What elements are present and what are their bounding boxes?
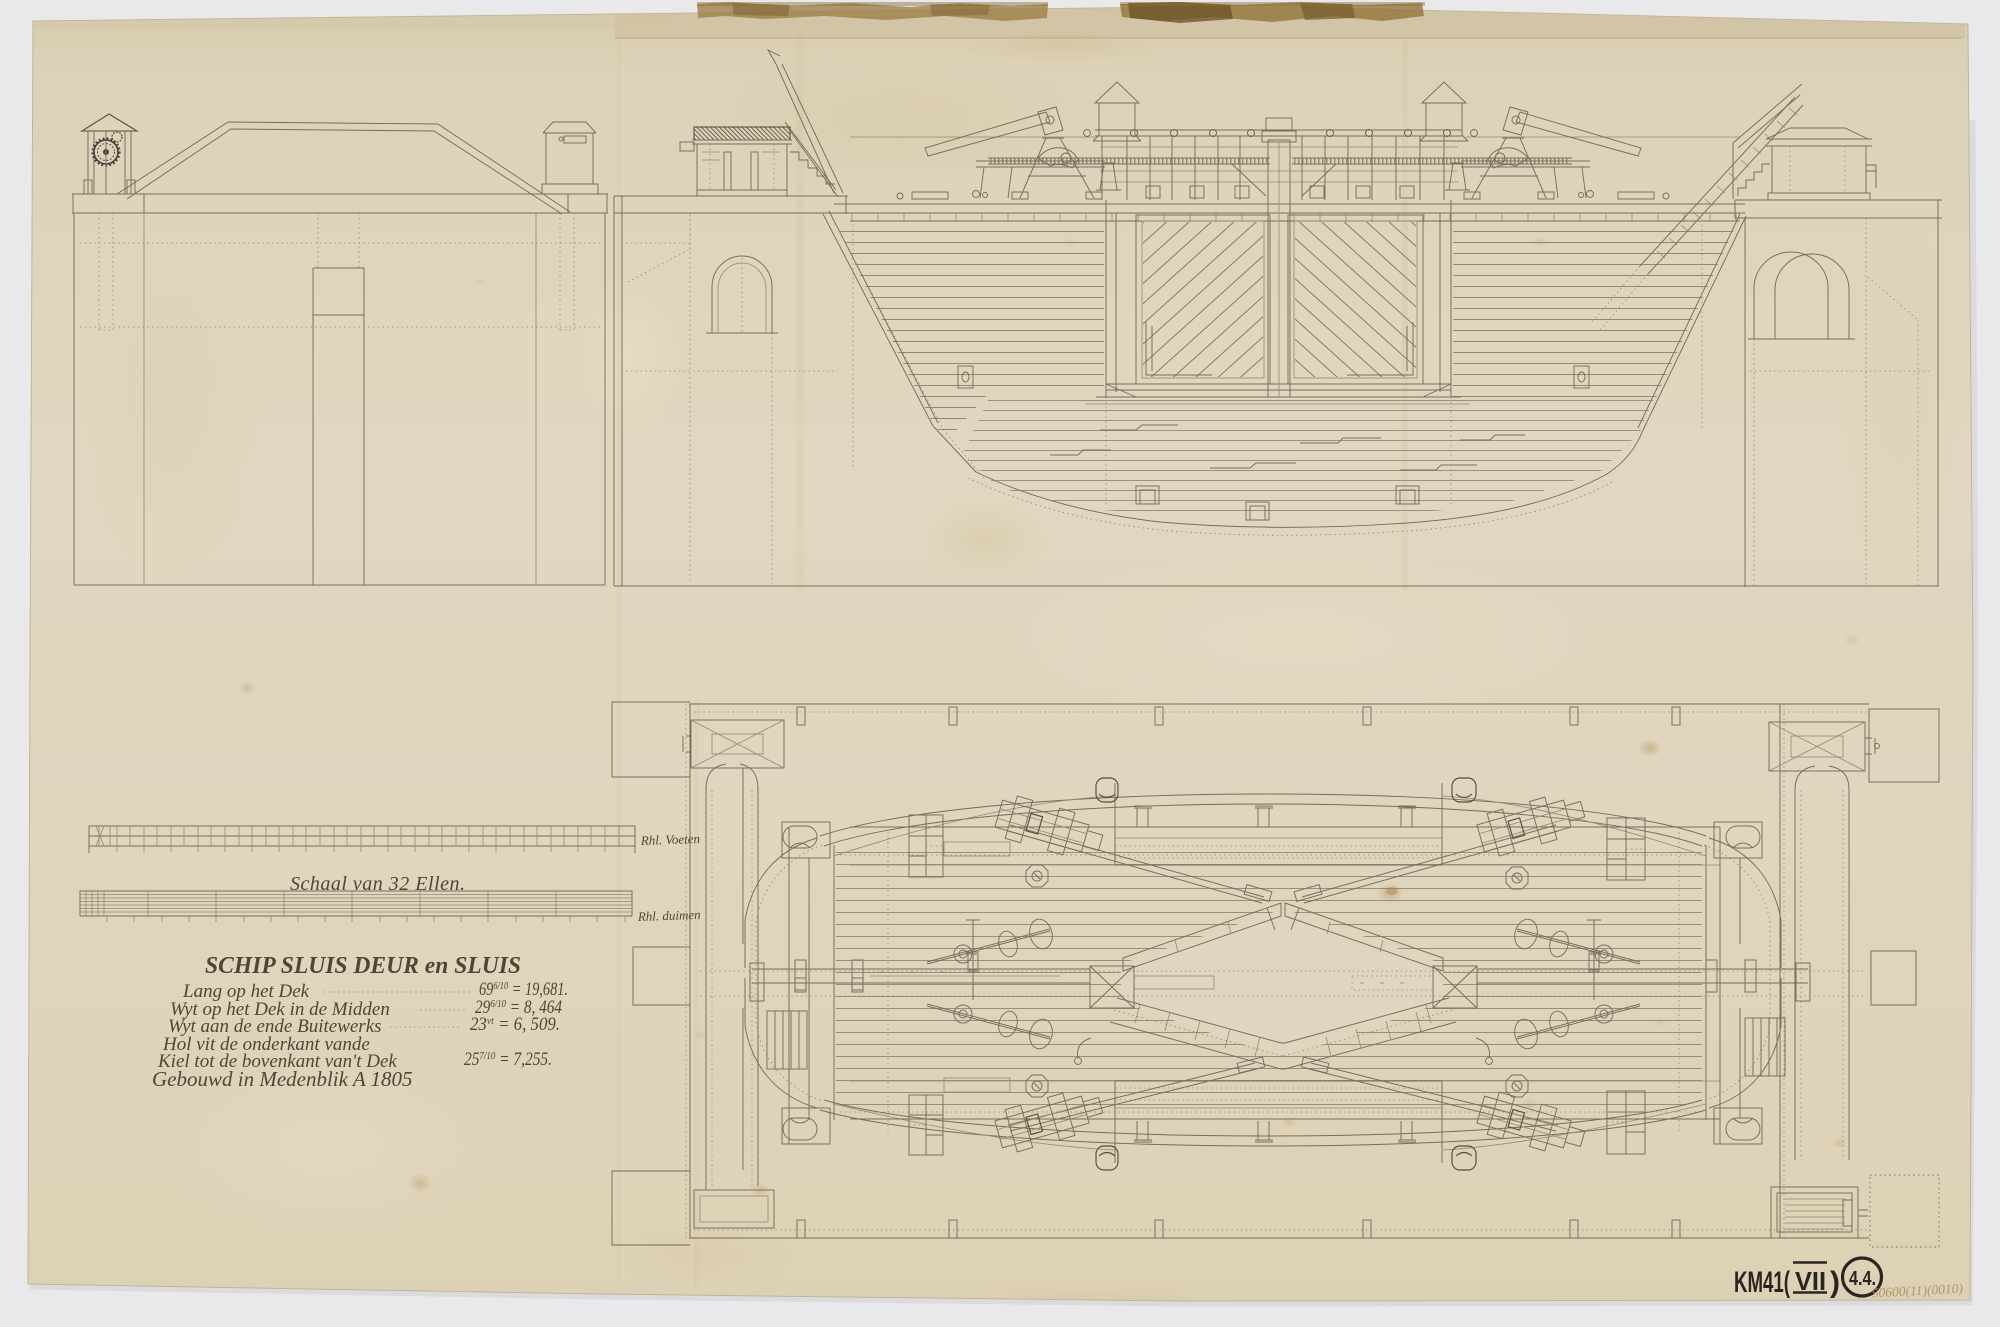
svg-text:SCHIP SLUIS DEUR en SLUIS: SCHIP SLUIS DEUR en SLUIS xyxy=(205,953,521,979)
svg-text:Rhl. Voeten: Rhl. Voeten xyxy=(640,831,701,848)
svg-text:Schaal van 32 Ellen.: Schaal van 32 Ellen. xyxy=(290,873,466,895)
svg-text:Gebouwd in Medenblik A 1805: Gebouwd in Medenblik A 1805 xyxy=(152,1067,413,1091)
svg-text:): ) xyxy=(1830,1266,1840,1299)
svg-text:257/10 = 7,255.: 257/10 = 7,255. xyxy=(464,1049,552,1070)
svg-text:Rhl. duimen: Rhl. duimen xyxy=(637,907,701,924)
svg-text:23vt = 6, 509.: 23vt = 6, 509. xyxy=(470,1014,560,1035)
svg-text:KM41(: KM41( xyxy=(1734,1266,1790,1299)
